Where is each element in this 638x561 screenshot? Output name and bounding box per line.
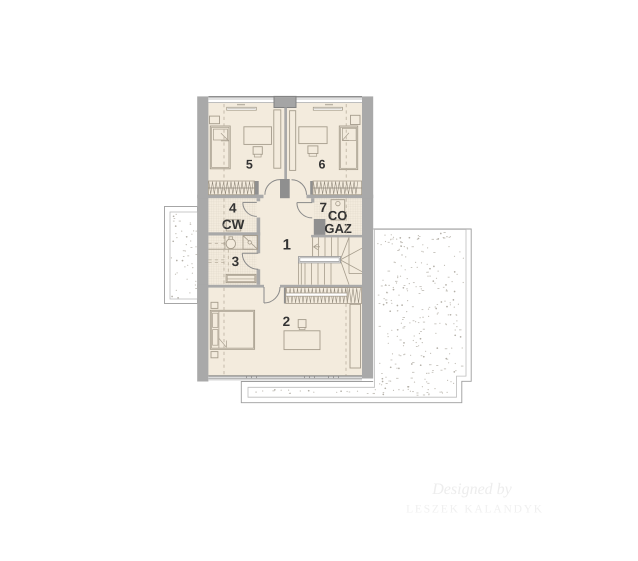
svg-text:5: 5: [246, 158, 253, 172]
svg-text:1: 1: [283, 236, 291, 253]
svg-text:2: 2: [283, 314, 291, 329]
svg-text:4: 4: [229, 200, 237, 215]
svg-text:6: 6: [319, 158, 326, 172]
svg-text:GAZ: GAZ: [324, 221, 352, 236]
svg-text:LESZEK KALANDYK: LESZEK KALANDYK: [406, 504, 544, 516]
svg-text:3: 3: [232, 254, 240, 269]
svg-text:CW: CW: [222, 217, 245, 232]
svg-text:Designed by: Designed by: [431, 481, 512, 498]
svg-text:7: 7: [319, 200, 327, 215]
